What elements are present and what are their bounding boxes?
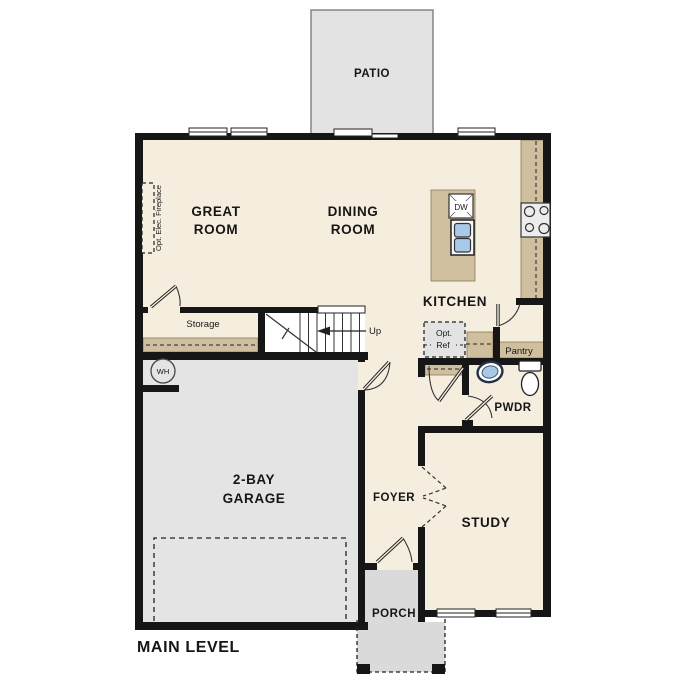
wall-garage-top [135,352,368,360]
optional-fireplace-box [142,183,154,253]
kitchen-sink [451,220,474,255]
dining-room-label-2: ROOM [331,222,375,237]
water-heater-label: WH [157,367,170,376]
floor-plan-svg: Opt. Ref WH DW [0,0,687,687]
wall-pantry-north [516,298,543,305]
porch-post-left [357,664,370,674]
dining-room-label-1: DINING [328,204,379,219]
cooktop [521,203,550,237]
powder-room-label: PWDR [494,402,531,414]
porch-label: PORCH [372,608,416,620]
opt-ref-label-1: Opt. [436,328,452,338]
pantry-counter [467,332,493,358]
wall-study-west-b [418,527,425,622]
kitchen-label: KITCHEN [423,294,487,309]
wall-storage-stub [139,307,148,313]
wall-garage-right-b [358,390,365,622]
great-room-label-1: GREAT [191,204,240,219]
dishwasher-label: DW [454,203,468,212]
wall-pantry-west [493,327,500,358]
great-room-label-2: ROOM [194,222,238,237]
wall-exterior-left [135,133,143,630]
toilet [519,361,541,396]
storage-label: Storage [186,319,219,330]
patio-slider-panel-1 [334,129,372,136]
wall-garage-right-a [358,352,365,362]
patio-label: PATIO [354,68,390,80]
garage-label-2: GARAGE [223,491,286,506]
opt-ref-label-2: Ref [436,340,450,350]
wall-stairs-left [258,307,265,352]
wall-wh-nook [143,385,179,392]
garage-label-1: 2-BAY [233,472,275,487]
foyer-label: FOYER [373,492,415,504]
water-heater: WH [151,359,175,383]
porch-floor-outer [357,622,445,672]
floor-plan-page: Opt. Ref WH DW [0,0,687,687]
stairs-up-label: Up [369,326,381,337]
patio-slider-panel-2 [372,134,398,138]
wall-closet-left [418,358,425,377]
stair-rail [318,306,365,313]
dishwasher: DW [449,194,473,218]
optional-refrigerator: Opt. Ref [424,322,465,357]
study-label: STUDY [462,515,511,530]
plan-title: MAIN LEVEL [137,639,240,656]
stair-well [265,313,365,352]
wall-study-top [418,426,551,433]
porch-post-right [432,664,445,674]
wall-pwdr-west [462,358,469,395]
fireplace-label: Opt. Elec. Fireplace [154,185,163,251]
wall-study-west-a [418,433,425,466]
wall-storage-top [180,307,318,313]
wall-garage-bottom [135,622,368,630]
staircase [265,313,366,352]
pantry-label: Pantry [505,346,533,357]
